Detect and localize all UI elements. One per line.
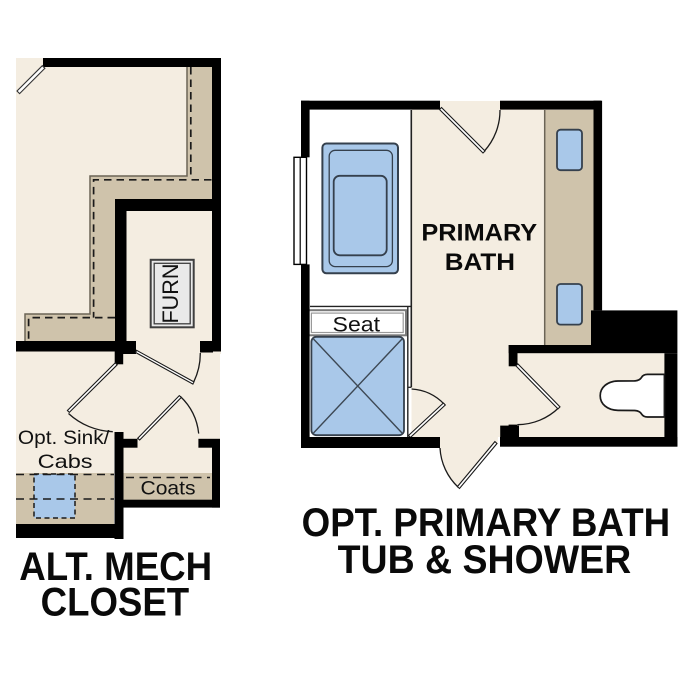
svg-text:Cabs: Cabs	[38, 451, 93, 473]
svg-text:PRIMARY: PRIMARY	[421, 220, 537, 247]
svg-text:Opt. Sink/: Opt. Sink/	[18, 427, 110, 449]
svg-text:CLOSET: CLOSET	[41, 580, 190, 624]
svg-text:TUB & SHOWER: TUB & SHOWER	[338, 538, 632, 582]
svg-text:Seat: Seat	[333, 313, 381, 336]
svg-text:FURN: FURN	[158, 264, 183, 324]
svg-text:BATH: BATH	[445, 249, 515, 276]
svg-text:Coats: Coats	[141, 478, 196, 500]
